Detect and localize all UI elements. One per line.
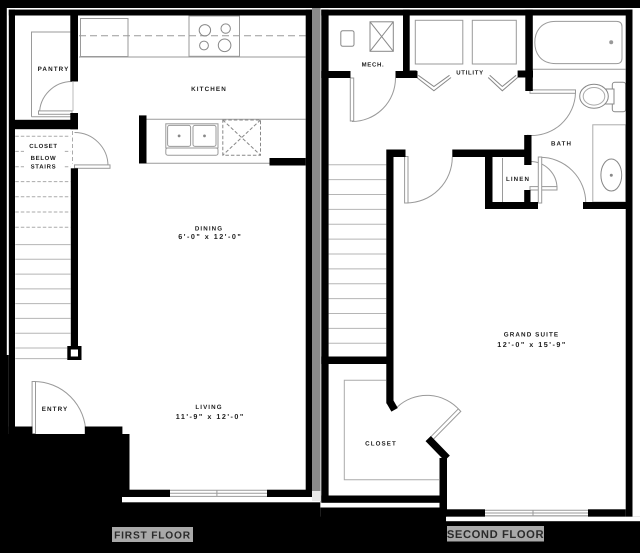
svg-text:UTILITY: UTILITY [456, 70, 484, 77]
svg-text:BELOW: BELOW [31, 155, 57, 162]
svg-text:6'-0" x 12'-0": 6'-0" x 12'-0" [178, 232, 242, 241]
svg-text:LIVING: LIVING [195, 404, 222, 411]
svg-text:MECH.: MECH. [362, 61, 385, 68]
svg-text:CLOSET: CLOSET [29, 143, 58, 150]
svg-text:CLOSET: CLOSET [365, 440, 397, 447]
svg-text:ENTRY: ENTRY [42, 406, 69, 413]
svg-text:LINEN: LINEN [506, 176, 530, 183]
svg-text:SECOND FLOOR: SECOND FLOOR [447, 529, 544, 541]
svg-text:GRAND SUITE: GRAND SUITE [504, 332, 559, 339]
svg-text:KITCHEN: KITCHEN [191, 86, 227, 93]
svg-text:STAIRS: STAIRS [31, 164, 57, 171]
svg-text:BATH: BATH [551, 140, 572, 147]
svg-text:12'-0" x 15'-9": 12'-0" x 15'-9" [497, 340, 567, 349]
svg-text:PANTRY: PANTRY [38, 66, 70, 73]
svg-text:FIRST FLOOR: FIRST FLOOR [114, 530, 191, 541]
svg-text:11'-9" x 12'-0": 11'-9" x 12'-0" [176, 412, 245, 421]
